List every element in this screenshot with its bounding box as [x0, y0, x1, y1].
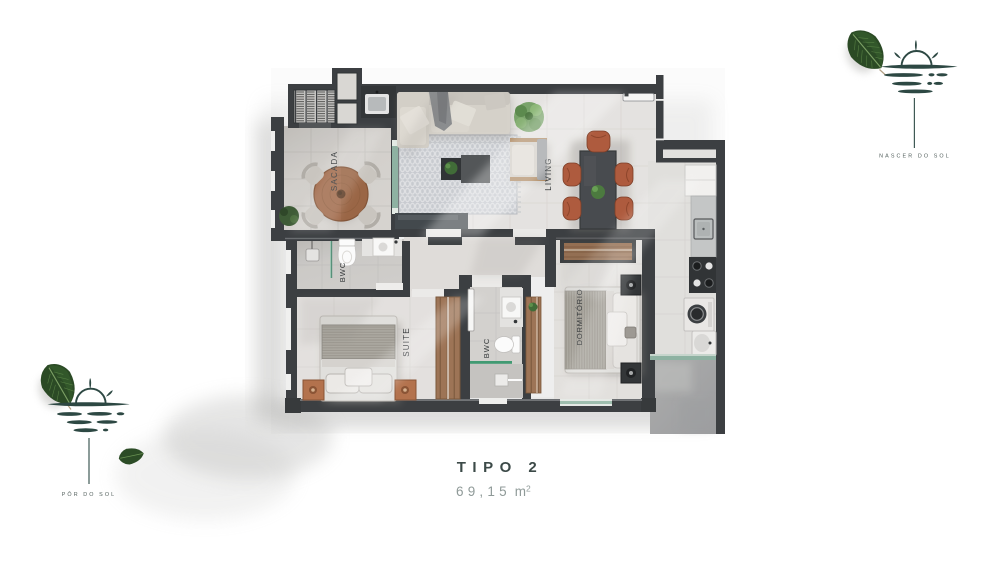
svg-text:SUITE: SUITE: [402, 327, 411, 357]
svg-text:BWC: BWC: [338, 262, 347, 283]
svg-text:NASCER DO SOL: NASCER DO SOL: [879, 154, 951, 160]
svg-text:DORMITÓRIO: DORMITÓRIO: [575, 289, 584, 346]
svg-text:SACADA: SACADA: [330, 151, 339, 191]
svg-text:69,15m2: 69,15m2: [456, 484, 531, 500]
svg-text:BWC: BWC: [482, 338, 491, 359]
svg-text:PÔR DO SOL: PÔR DO SOL: [62, 491, 117, 498]
svg-text:LIVING: LIVING: [544, 157, 553, 190]
svg-text:TIPO 2: TIPO 2: [457, 459, 544, 476]
